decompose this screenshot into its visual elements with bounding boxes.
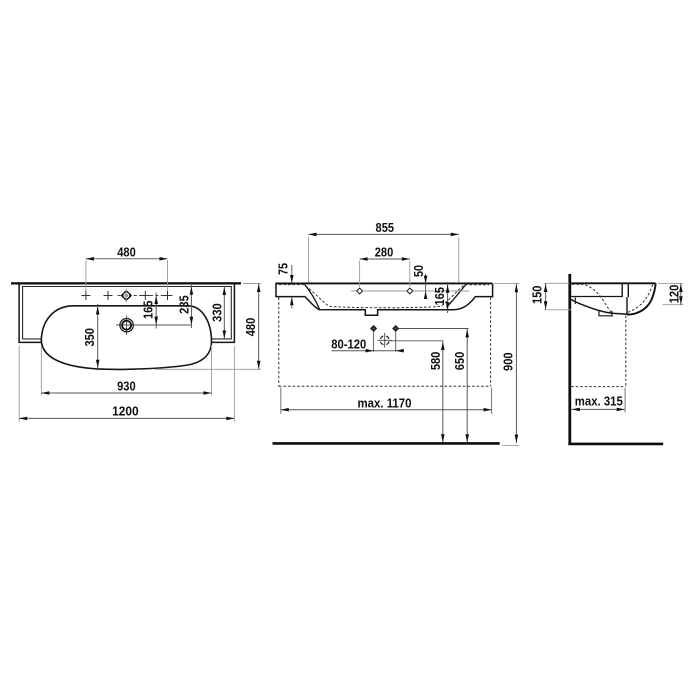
svg-text:350: 350 [82, 328, 97, 347]
svg-text:480: 480 [243, 318, 258, 337]
svg-text:855: 855 [376, 220, 395, 235]
svg-text:75: 75 [276, 263, 291, 275]
svg-text:max. 1170: max. 1170 [358, 395, 412, 410]
svg-text:330: 330 [209, 303, 224, 322]
svg-text:930: 930 [117, 379, 136, 394]
svg-text:900: 900 [501, 352, 516, 371]
svg-text:280: 280 [375, 245, 394, 260]
svg-text:235: 235 [176, 295, 191, 314]
svg-text:580: 580 [428, 352, 443, 371]
svg-text:650: 650 [452, 352, 467, 371]
svg-text:120: 120 [667, 285, 682, 304]
svg-text:1200: 1200 [112, 404, 139, 419]
svg-text:max. 315: max. 315 [575, 393, 623, 408]
svg-text:480: 480 [117, 245, 136, 260]
svg-text:165: 165 [432, 287, 447, 306]
svg-text:165: 165 [141, 301, 156, 320]
svg-text:150: 150 [530, 286, 545, 305]
svg-text:50: 50 [411, 265, 426, 277]
svg-text:80-120: 80-120 [331, 336, 366, 351]
